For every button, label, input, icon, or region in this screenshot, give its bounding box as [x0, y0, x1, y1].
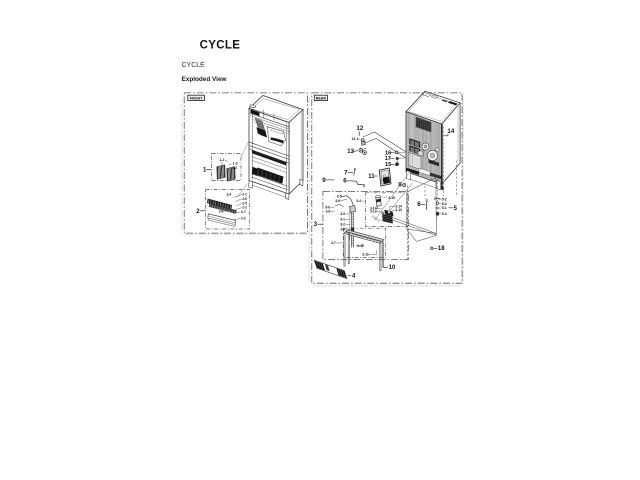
svg-text:3-1: 3-1	[340, 217, 345, 221]
svg-text:13: 13	[347, 149, 354, 155]
svg-text:5-1: 5-1	[442, 206, 447, 210]
svg-text:3-8: 3-8	[340, 228, 345, 232]
svg-text:3-12: 3-12	[370, 209, 377, 213]
svg-text:2-6: 2-6	[219, 210, 224, 214]
svg-text:5-2: 5-2	[442, 197, 447, 201]
svg-text:2-4: 2-4	[227, 192, 232, 196]
svg-text:REAR: REAR	[316, 96, 327, 100]
svg-text:14: 14	[447, 128, 454, 135]
svg-text:11: 11	[368, 174, 375, 180]
svg-text:3-6: 3-6	[335, 199, 340, 203]
svg-text:Exploded View: Exploded View	[182, 76, 227, 83]
svg-text:3-9: 3-9	[340, 212, 345, 216]
svg-text:1-3: 1-3	[233, 162, 238, 166]
svg-text:3-12: 3-12	[357, 244, 364, 248]
svg-text:FRONT: FRONT	[190, 96, 203, 100]
svg-text:5-3: 5-3	[442, 212, 447, 216]
svg-text:2-6: 2-6	[242, 197, 247, 201]
svg-text:5-4: 5-4	[442, 202, 447, 206]
svg-text:15: 15	[385, 162, 391, 168]
svg-text:3-6: 3-6	[326, 209, 331, 213]
svg-text:2-1: 2-1	[242, 192, 247, 196]
svg-text:12: 12	[357, 126, 364, 132]
svg-text:3-13: 3-13	[395, 208, 402, 212]
svg-text:2-3: 2-3	[241, 216, 246, 220]
svg-text:CYCLE: CYCLE	[182, 62, 206, 69]
svg-text:strde of schtde an strand an s: strde of schtde an strand an strde of st…	[180, 100, 184, 230]
svg-text:2-7: 2-7	[241, 210, 246, 214]
svg-text:18: 18	[438, 246, 445, 252]
svg-text:strde of schtde an strand an s: strde of schtde an strand an strde of st…	[307, 97, 311, 282]
svg-text:1-1: 1-1	[220, 158, 225, 162]
svg-text:3-5: 3-5	[337, 195, 342, 199]
svg-text:strde of schtde an strand an s: strde of schtde an strand an strde of st…	[461, 97, 465, 282]
svg-text:CYCLE: CYCLE	[200, 39, 241, 51]
svg-text:1-2: 1-2	[232, 166, 237, 170]
svg-text:12-1: 12-1	[352, 137, 359, 141]
svg-text:strde of schtde an strand an s: strde of schtde an strand an strde of st…	[313, 283, 462, 287]
svg-text:3-4: 3-4	[356, 199, 361, 203]
svg-text:3-2: 3-2	[340, 223, 345, 227]
svg-text:3-7: 3-7	[331, 241, 336, 245]
svg-text:3-15: 3-15	[388, 196, 395, 200]
svg-text:strde of schtde an strand an s: strde of schtde an strand an strde of st…	[185, 232, 306, 236]
svg-text:10: 10	[389, 265, 396, 271]
